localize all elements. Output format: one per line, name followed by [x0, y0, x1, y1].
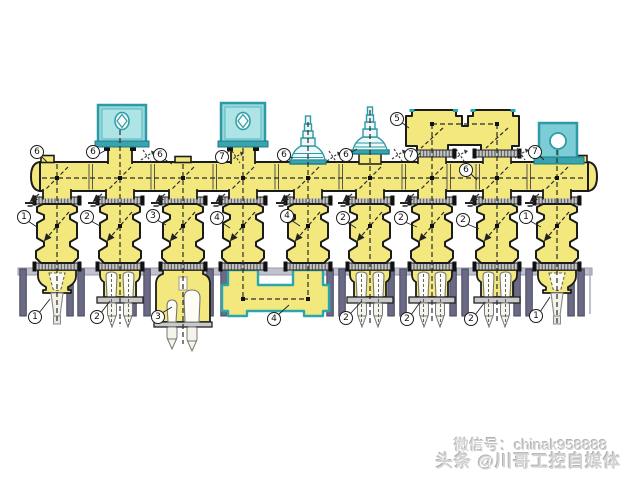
bay-3: [151, 194, 208, 272]
callout-number: 2: [340, 213, 346, 223]
callout-number: 7: [408, 150, 414, 160]
callout: 2: [336, 211, 350, 225]
callout: 6: [153, 148, 167, 162]
callout: 6: [459, 163, 473, 177]
callout: 1: [28, 310, 42, 324]
bay-7: [400, 194, 457, 272]
callout-number: 4: [284, 211, 290, 221]
callout-number: 6: [34, 147, 40, 157]
callout-number: 2: [398, 213, 404, 223]
callout-number: 5: [394, 114, 400, 124]
callout: 1: [519, 210, 533, 224]
callout: 2: [90, 310, 104, 324]
callout: 3: [151, 310, 165, 324]
callout-number: 7: [532, 147, 538, 157]
callout: 4: [280, 209, 294, 223]
callout: 2: [339, 311, 353, 325]
bay-9: [525, 194, 582, 272]
callout: 7: [215, 150, 229, 164]
callout: 2: [464, 312, 478, 326]
bay-1: [25, 194, 82, 272]
callout-number: 6: [463, 165, 469, 175]
callout: 4: [210, 211, 224, 225]
callout: 1: [529, 309, 543, 323]
callout: 6: [339, 148, 353, 162]
callout: 5: [390, 112, 404, 126]
gas-flow-symbols: [141, 148, 529, 163]
callout-number: 2: [460, 215, 466, 225]
callout: 7: [404, 148, 418, 162]
callout: 2: [456, 213, 470, 227]
callout-number: 1: [523, 212, 529, 222]
screenshot-canvas: 6 6 6 7 6 6 5 7 6 7 1 2 3 4 4 2 2 2 1 1 …: [0, 0, 640, 480]
bus-bridge: [406, 109, 522, 164]
callout-number: 2: [84, 212, 90, 222]
callout-number: 3: [155, 312, 161, 322]
cable-terminations: [38, 270, 576, 351]
callout: 6: [30, 145, 44, 159]
callout: 6: [86, 145, 100, 159]
busbar-tee-necks: [43, 189, 571, 199]
callout: 2: [394, 211, 408, 225]
gis-switchgear-diagram: [0, 0, 640, 480]
callout-number: 4: [271, 314, 277, 324]
callout-number: 6: [343, 150, 349, 160]
callout-number: 1: [21, 212, 27, 222]
callout: 1: [17, 210, 31, 224]
callout-number: 6: [281, 150, 287, 160]
bay-2: [88, 194, 145, 272]
watermark-line2: 头条 @川哥工控自媒体: [436, 447, 621, 472]
callout: 3: [146, 209, 160, 223]
callout: 2: [400, 312, 414, 326]
breaker-bays: [25, 194, 582, 272]
callout-number: 4: [214, 213, 220, 223]
callout-number: 6: [157, 150, 163, 160]
callout-number: 2: [94, 312, 100, 322]
callout: 4: [267, 312, 281, 326]
callout-number: 2: [343, 313, 349, 323]
callout-number: 2: [404, 314, 410, 324]
bay-4: [211, 194, 268, 272]
callout-number: 7: [219, 152, 225, 162]
bay-6: [338, 194, 395, 272]
callout: 7: [528, 145, 542, 159]
callout-number: 1: [533, 311, 539, 321]
vt-box-1: [95, 105, 149, 164]
callout: 6: [277, 148, 291, 162]
callout-number: 3: [150, 211, 156, 221]
bay-5: [276, 194, 333, 272]
callout: 2: [80, 210, 94, 224]
callout-number: 1: [32, 312, 38, 322]
callout-number: 6: [90, 147, 96, 157]
callout-number: 2: [468, 314, 474, 324]
bus-link-duct: [222, 270, 329, 316]
bay-8: [465, 194, 522, 272]
